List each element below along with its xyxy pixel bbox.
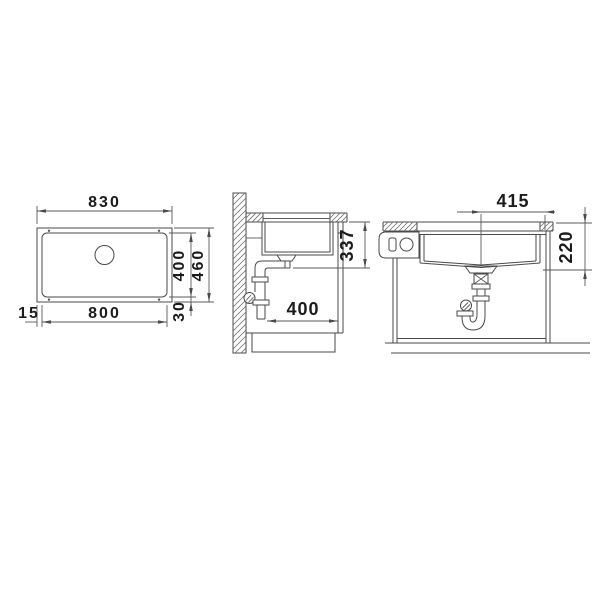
counter-hatch-right: [330, 213, 347, 222]
counter-hatch-right: [540, 222, 553, 231]
trap-nut: [472, 284, 490, 289]
dim-left-offset-label: 15: [18, 305, 40, 322]
trap-nut: [457, 311, 473, 316]
trap-nut: [473, 296, 489, 301]
front-section-view: 415 220: [379, 191, 592, 353]
technical-drawing-page: 830 400 460 800 15: [0, 0, 601, 600]
dim-bowl-width: 800: [25, 305, 167, 327]
countertop-front: [383, 222, 553, 231]
dim-bottom-offset: 30: [171, 297, 193, 322]
countertop-side: [246, 213, 347, 222]
dim-outer-width-label: 830: [88, 194, 121, 211]
sink-installation-drawing: 830 400 460 800 15: [0, 0, 601, 600]
trap-cleanout-cap: [461, 300, 472, 311]
trap-nut: [252, 277, 268, 282]
cabinet-side: [246, 222, 343, 352]
basin-side: [262, 219, 333, 256]
drain-trap-front: [457, 266, 497, 330]
dim-bottom-offset-label: 30: [171, 300, 188, 322]
trap-nut: [253, 300, 269, 305]
dim-pipe-to-front: 400: [267, 299, 338, 323]
dim-pipe-to-front-label: 400: [286, 299, 319, 319]
dim-bowl-height-label: 400: [171, 249, 188, 282]
dim-underside-to-trap: 337: [293, 222, 370, 268]
counter-hatch-left: [383, 222, 417, 231]
dim-outer-width: 830: [37, 194, 172, 224]
dim-bowl-width-label: 800: [88, 305, 121, 322]
dim-top-to-bowl-bottom-label: 220: [556, 230, 576, 263]
drain-control-box: [379, 232, 419, 258]
dim-underside-to-trap-label: 337: [337, 228, 357, 261]
side-section-view: 400 337: [233, 193, 370, 353]
top-view: 830 400 460 800 15: [18, 194, 214, 327]
drain-flange: [277, 255, 296, 261]
fixing-points: [48, 230, 160, 301]
counter-hatch-left: [246, 213, 263, 222]
wall-hatch: [233, 193, 246, 353]
dim-outer-height-label: 460: [190, 249, 207, 282]
dim-center-to-edge-label: 415: [496, 191, 529, 211]
drain-hole: [95, 246, 114, 265]
